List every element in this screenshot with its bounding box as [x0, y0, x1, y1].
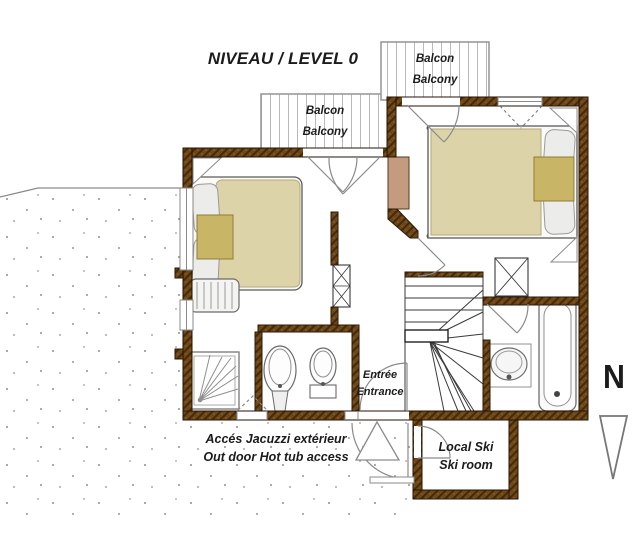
entrance-label: Entrée Entrance: [330, 367, 430, 401]
floor-plan-page: NIVEAU / LEVEL 0 Balcon Balcony Balcon B…: [0, 0, 640, 535]
window-left-1: [180, 188, 193, 270]
compass-arrow: [600, 416, 627, 479]
window-bottom-shower: [237, 412, 267, 420]
entrance-label-en: Entrance: [330, 384, 430, 401]
window-left-2: [180, 300, 193, 330]
counter-washbasin: [487, 344, 531, 387]
right-bedroom-closet: [495, 258, 528, 296]
ski-room-label: Local Ski Ski room: [416, 438, 516, 474]
bathtub: [539, 298, 576, 411]
right-bedroom-bed: [427, 126, 578, 239]
balcony-lower-label-en: Balcony: [265, 122, 385, 143]
balcony-lower-label: Balcon Balcony: [265, 101, 385, 143]
balcony-upper-label: Balcon Balcony: [375, 49, 495, 91]
balcony-upper-label-fr: Balcon: [375, 49, 495, 70]
left-bedroom-bench: [190, 279, 239, 312]
shower: [190, 352, 239, 409]
balcony-lower-label-fr: Balcon: [265, 101, 385, 122]
hot-tub-access-label: Accés Jacuzzi extérieur Out door Hot tub…: [176, 430, 376, 466]
window-bottom-basin: [345, 412, 358, 420]
threshold-step: [370, 477, 414, 483]
chimney-block: [388, 157, 409, 209]
ski-room-label-fr: Local Ski: [416, 438, 516, 456]
balcony-upper-label-en: Balcony: [375, 70, 495, 91]
ski-room-label-en: Ski room: [416, 456, 516, 474]
ski-room-wall-bottom: [413, 490, 518, 499]
entrance-label-fr: Entrée: [330, 367, 430, 384]
left-bedroom-bed: [189, 177, 302, 290]
hall-closet: [333, 265, 350, 307]
plan-title: NIVEAU / LEVEL 0: [183, 49, 383, 69]
hot-tub-access-label-fr: Accés Jacuzzi extérieur: [176, 430, 376, 448]
compass-n-label: N: [598, 360, 629, 393]
hot-tub-access-label-en: Out door Hot tub access: [176, 448, 376, 466]
